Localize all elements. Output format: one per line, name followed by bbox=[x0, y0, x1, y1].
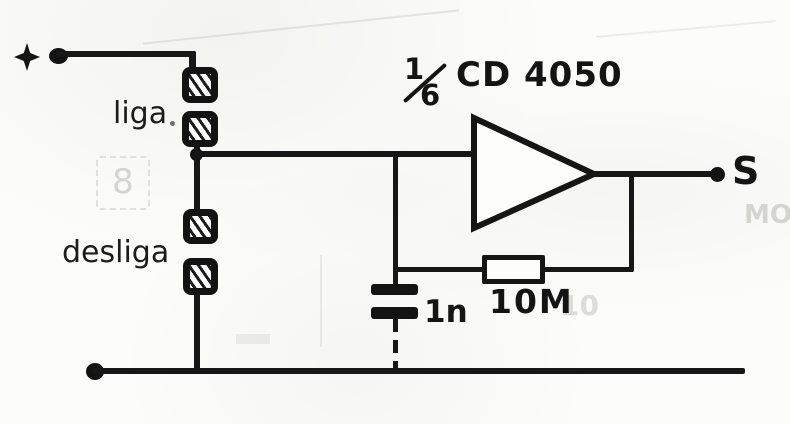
bleed-artifact-text: 8 bbox=[112, 162, 134, 202]
feedback-resistor bbox=[482, 255, 545, 284]
scan-smudge bbox=[236, 334, 270, 344]
bleed-artifact-box: 8 bbox=[96, 156, 150, 210]
schematic-canvas: 8 MO 10 liga desliga 1n 10M bbox=[0, 0, 790, 424]
touch-pad-desliga-bottom bbox=[183, 258, 218, 295]
print-speck bbox=[170, 121, 175, 126]
scan-streak bbox=[596, 20, 775, 38]
touch-pad-liga-bottom bbox=[182, 111, 218, 147]
bleed-artifact-text: MO bbox=[744, 202, 790, 228]
scan-streak bbox=[320, 255, 322, 347]
liga-label: liga bbox=[113, 99, 167, 129]
supply-wire bbox=[56, 51, 196, 57]
capacitor-ground-wire bbox=[393, 319, 398, 371]
output-wire bbox=[592, 171, 719, 177]
pad-ground-wire bbox=[194, 293, 200, 373]
buffer-gate-triangle bbox=[468, 111, 601, 235]
scan-streak bbox=[143, 9, 459, 44]
feedback-wire-left bbox=[393, 267, 486, 272]
desliga-label: desliga bbox=[62, 238, 169, 268]
output-terminal-dot bbox=[710, 167, 725, 182]
input-wire bbox=[194, 151, 479, 157]
capacitor-top-plate bbox=[371, 284, 418, 295]
touch-pad-liga-top bbox=[182, 67, 218, 103]
ic-name-label: CD 4050 bbox=[456, 58, 623, 92]
feedback-wire-right bbox=[543, 267, 634, 272]
plus-terminal-icon bbox=[14, 43, 40, 71]
touch-pad-desliga-top bbox=[183, 209, 218, 244]
capacitor-value-label: 1n bbox=[424, 297, 468, 328]
gate-fraction-denominator: 6 bbox=[420, 81, 440, 110]
feedback-wire-vertical bbox=[629, 172, 634, 272]
output-label: S bbox=[732, 152, 759, 190]
ground-rail bbox=[93, 368, 745, 374]
capacitor-bottom-plate bbox=[371, 307, 418, 319]
resistor-value-label: 10M bbox=[489, 285, 574, 318]
